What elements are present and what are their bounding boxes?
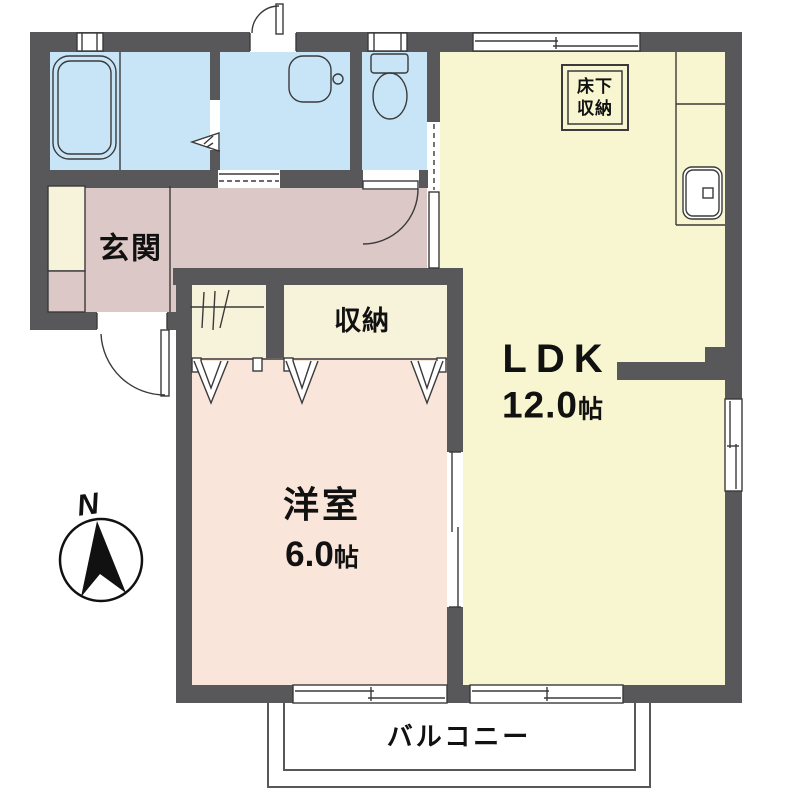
- compass-icon: [60, 519, 142, 601]
- western-room-balcony-door-icon: [293, 685, 447, 703]
- closet-floor: [192, 285, 447, 360]
- underfloor-storage-line2: 収納: [577, 98, 613, 120]
- service-door-icon: [250, 4, 296, 52]
- washroom-sliding-door-icon: [218, 170, 280, 188]
- kitchen-sink-icon: [683, 167, 722, 219]
- floor-plan-drawing: [0, 0, 800, 800]
- ldk-side-window-icon: [725, 399, 742, 491]
- ldk-size-value: 12.0: [502, 385, 578, 426]
- bathroom-window-icon: [77, 33, 103, 51]
- underfloor-storage-line1: 床下: [577, 76, 613, 98]
- ldk-sliding-door-icon: [428, 122, 440, 268]
- entrance-label: 玄関: [99, 233, 163, 266]
- closet-label: 収納: [334, 307, 390, 337]
- ldk-size-label: 12.0帖: [502, 386, 604, 427]
- bathroom-floor: [50, 52, 210, 170]
- ldk-label: LDK: [502, 337, 611, 381]
- western-room-label: 洋室: [283, 485, 361, 525]
- ldk-size-unit: 帖: [578, 396, 604, 424]
- balcony-label: バルコニー: [387, 723, 531, 752]
- western-room-size-label: 6.0帖: [285, 536, 359, 575]
- hallway-floor: [180, 186, 427, 268]
- compass-north-label: N: [75, 487, 101, 523]
- ldk-balcony-door-icon: [470, 685, 623, 703]
- western-room-size-value: 6.0: [285, 535, 334, 574]
- ldk-top-window-icon: [473, 33, 640, 51]
- partition-sliding-door-icon: [447, 452, 463, 607]
- underfloor-storage-label: 床下 収納: [577, 76, 613, 120]
- toilet-window-icon: [368, 33, 407, 51]
- floor-plan: 玄関 収納 LDK 12.0帖 洋室 6.0帖 バルコニー 床下 収納 N: [0, 0, 800, 800]
- front-door-icon: [97, 312, 169, 396]
- western-room-size-unit: 帖: [334, 544, 359, 572]
- shoe-cabinet-icon: [48, 186, 85, 312]
